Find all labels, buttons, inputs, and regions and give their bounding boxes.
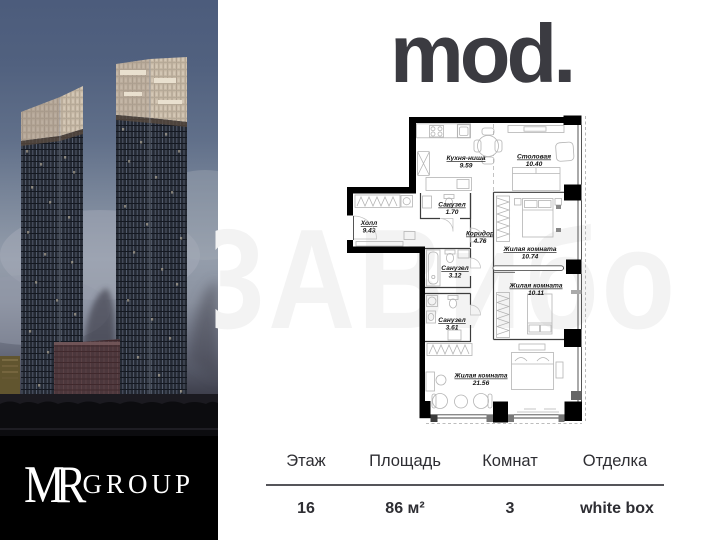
svg-text:Холл: Холл: [360, 220, 377, 227]
svg-text:Санузел: Санузел: [441, 265, 468, 272]
svg-text:Коридор: Коридор: [466, 230, 494, 238]
svg-text:Кухня-ниша: Кухня-ниша: [447, 155, 486, 162]
svg-text:9.59: 9.59: [460, 163, 473, 170]
svg-text:3.12: 3.12: [449, 273, 462, 280]
svg-text:21.56: 21.56: [472, 380, 490, 387]
svg-text:10.11: 10.11: [528, 290, 544, 297]
svg-text:Санузел: Санузел: [438, 317, 465, 324]
svg-text:Жилая комната: Жилая комната: [508, 283, 562, 290]
svg-text:Жилая комната: Жилая комната: [502, 246, 556, 253]
svg-text:10.74: 10.74: [522, 254, 539, 261]
svg-text:4.76: 4.76: [473, 238, 487, 245]
svg-text:10.40: 10.40: [526, 161, 543, 168]
svg-text:Санузел: Санузел: [438, 202, 465, 209]
svg-text:Столовая: Столовая: [517, 154, 551, 161]
svg-text:3.61: 3.61: [446, 325, 459, 332]
svg-text:1.70: 1.70: [446, 209, 459, 216]
svg-text:Жилая комната: Жилая комната: [453, 373, 507, 380]
